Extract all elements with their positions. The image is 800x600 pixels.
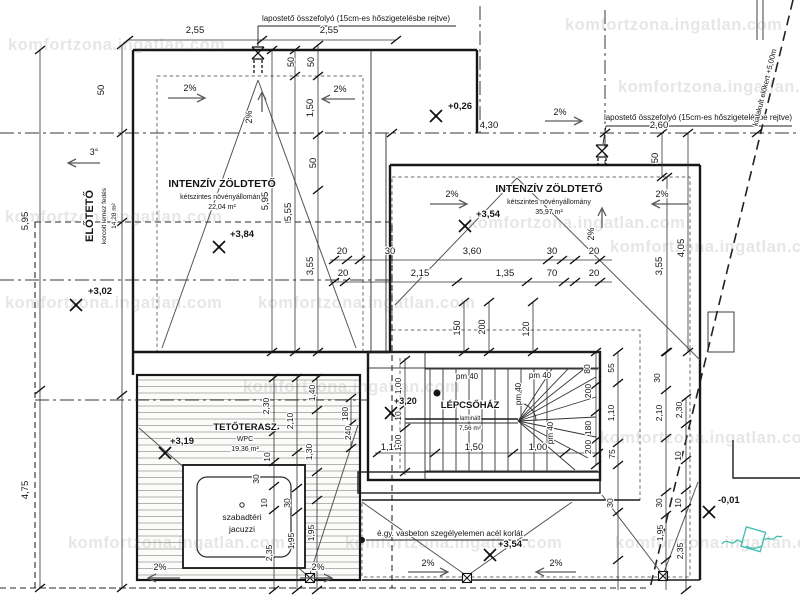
green-roof-right-area xyxy=(362,177,690,577)
slope-left-1: 2% xyxy=(183,83,196,93)
floor-plan-canvas: komfortzona.ingatlan.comkomfortzona.inga… xyxy=(0,0,800,600)
dim: 150 xyxy=(452,320,462,335)
elevation-staircase: +3,20 xyxy=(394,396,417,406)
dim: 2,10 xyxy=(285,412,295,429)
watermark-text: komfortzona.ingatlan.com xyxy=(618,78,800,96)
dim: 200 xyxy=(477,319,487,334)
dim: 2,55 xyxy=(320,25,339,36)
dim: 2,30 xyxy=(674,401,684,418)
dim: 1,00 xyxy=(393,377,403,394)
dim: 3,55 xyxy=(305,257,316,276)
dim: 4,75 xyxy=(20,481,31,500)
dim: 2,10 xyxy=(654,404,664,421)
dim: 10 xyxy=(673,451,683,461)
watermark-text: komfortzona.ingatlan.com xyxy=(258,294,475,312)
slope-terrace-2: 2% xyxy=(311,562,324,572)
watermark-text: komfortzona.ingatlan.com xyxy=(610,238,800,256)
dim: 75 xyxy=(607,449,617,459)
dim: 3,60 xyxy=(463,246,482,257)
note-flat-roof-drain-top: lapostető összefolyó (15cm-es hőszigetel… xyxy=(262,14,450,23)
dim: 5,55 xyxy=(283,203,294,222)
watermark-text: komfortzona.ingatlan.com xyxy=(5,294,222,312)
slope-right-1: 2% xyxy=(553,107,566,117)
label-jacuzzi-line1: szabadtéri xyxy=(222,512,261,522)
dim: 5,95 xyxy=(20,212,31,231)
slope-eloteto: 3° xyxy=(90,147,99,157)
dim: 1,00 xyxy=(393,434,403,451)
dim: 200 xyxy=(583,440,593,454)
dim: 30 xyxy=(605,498,615,508)
dim: 20 xyxy=(589,268,600,279)
dim: 1,95 xyxy=(286,532,296,549)
watermark-text: komfortzona.ingatlan.com xyxy=(243,378,460,396)
room-greenroof-left-name: INTENZÍV ZÖLDTETŐ xyxy=(168,177,275,190)
elevation-plus026: +0,26 xyxy=(448,101,472,112)
dim: 180 xyxy=(583,421,593,435)
dim: 1,00 xyxy=(529,442,548,453)
slope-left-2: 2% xyxy=(333,84,346,94)
dim: 50 xyxy=(306,57,316,67)
dim: 80 xyxy=(582,364,592,374)
room-greenroof-left-area: 22,04 m² xyxy=(208,204,236,211)
dim: 4,30 xyxy=(480,120,499,131)
elevation-greenroof-bottom: +3,54 xyxy=(498,539,523,550)
slope-right-3: 2% xyxy=(655,189,668,199)
room-terrace-name: TETŐTERASZ xyxy=(213,421,277,433)
label-jacuzzi-line2: jacuzzi xyxy=(228,524,255,534)
room-eloteto-material: korcolt lemez fedés xyxy=(101,187,108,244)
dim: 2,35 xyxy=(264,544,274,561)
dim: 20 xyxy=(589,246,600,257)
room-staircase-material: laminált xyxy=(460,416,481,422)
room-greenroof-right-area: 35,97 m² xyxy=(535,209,563,216)
dim: 50 xyxy=(650,153,661,164)
dim: 1,35 xyxy=(496,268,515,279)
room-eloteto-name: ELŐTETŐ xyxy=(83,190,96,242)
dim: 50 xyxy=(286,57,296,67)
dim: 5,95 xyxy=(260,192,271,211)
slope-left-3: 2% xyxy=(244,110,254,123)
dim: 4,05 xyxy=(676,239,687,258)
dim: 180 xyxy=(340,407,350,421)
dim: 30 xyxy=(282,498,292,508)
slope-bottom-1: 2% xyxy=(421,558,434,568)
dim: 1,95 xyxy=(655,524,665,541)
room-terrace-material: WPC xyxy=(237,436,253,443)
parapet-mark: pm 40 xyxy=(546,421,555,444)
room-staircase-name: LÉPCSŐHÁZ xyxy=(441,399,500,411)
dim: 20 xyxy=(337,246,348,257)
dim: 3,55 xyxy=(654,257,665,276)
parapet-mark: pm 40 xyxy=(514,382,523,405)
watermark-text: komfortzona.ingatlan.com xyxy=(600,429,800,447)
dim: 30 xyxy=(654,498,664,508)
dim: 30 xyxy=(547,246,558,257)
dim: 240 xyxy=(343,426,353,440)
dim: 10 xyxy=(393,411,403,421)
room-greenroof-right-material: kétszintes növényállomány xyxy=(507,199,591,206)
slope-bottom-2: 2% xyxy=(549,558,562,568)
watermark-text: komfortzona.ingatlan.com xyxy=(468,214,685,232)
dim: 2,30 xyxy=(261,397,271,414)
dim: 55 xyxy=(606,363,616,373)
dim: 200 xyxy=(583,384,593,398)
dim: 2,55 xyxy=(186,25,205,36)
dim: 2,35 xyxy=(675,542,685,559)
blueprint-drawing: komfortzona.ingatlan.comkomfortzona.inga… xyxy=(0,0,800,600)
room-terrace-area: 19,36 m² xyxy=(231,446,259,453)
dim: 1,50 xyxy=(465,442,484,453)
elevation-terrace: +3,19 xyxy=(170,436,194,447)
dim: 10 xyxy=(673,498,683,508)
slope-right-2: 2% xyxy=(445,189,458,199)
dim: 2,15 xyxy=(411,268,430,279)
dim: 70 xyxy=(547,268,558,279)
note-flat-roof-drain-right: lapostető összefolyó (15cm-es hőszigetel… xyxy=(604,113,792,122)
slope-right-4: 2% xyxy=(586,227,596,240)
staircase-block xyxy=(358,352,600,493)
note-steel-railing: é.gy. vasbeton szegélyelemen acél korlát xyxy=(377,529,523,538)
dim: 50 xyxy=(96,85,107,96)
elevation-greenroof-right: +3,54 xyxy=(476,209,501,220)
watermark-text: komfortzona.ingatlan.com xyxy=(565,16,782,34)
elevation-minus001: -0,01 xyxy=(718,495,740,506)
room-eloteto-area: 14,28 m² xyxy=(111,202,118,228)
dim: 10 xyxy=(262,452,272,462)
room-greenroof-left-material: kétszintes növényállomány xyxy=(180,194,264,201)
room-greenroof-right-name: INTENZÍV ZÖLDTETŐ xyxy=(495,182,602,195)
dim: 1,50 xyxy=(305,99,316,118)
watermark-text: komfortzona.ingatlan.com xyxy=(68,534,285,552)
dim: 2,60 xyxy=(650,120,669,131)
elevation-eloteto: +3,02 xyxy=(88,286,112,297)
elevation-greenroof-left: +3,84 xyxy=(230,229,255,240)
slope-terrace-1: 2% xyxy=(153,562,166,572)
parapet-mark: pm 40 xyxy=(456,372,479,381)
parapet-mark: pm 40 xyxy=(529,371,552,380)
dim: 50 xyxy=(308,158,319,169)
dim: 30 xyxy=(251,474,261,484)
dim: 1,10 xyxy=(606,404,616,421)
room-staircase-area: 7,56 m² xyxy=(459,425,482,432)
dim: 1,30 xyxy=(304,443,314,460)
dim: 30 xyxy=(652,373,662,383)
axis-lines xyxy=(0,6,800,400)
dim: 1,40 xyxy=(307,384,317,401)
dim: 1,95 xyxy=(306,524,316,541)
dim: 10 xyxy=(259,498,269,508)
watermark-text: komfortzona.ingatlan.com xyxy=(8,36,225,54)
dim: 120 xyxy=(521,321,531,336)
dim: 20 xyxy=(338,268,349,279)
watermark-text: komfortzona.ingatlan.com xyxy=(615,534,800,552)
dim: 30 xyxy=(385,246,396,257)
